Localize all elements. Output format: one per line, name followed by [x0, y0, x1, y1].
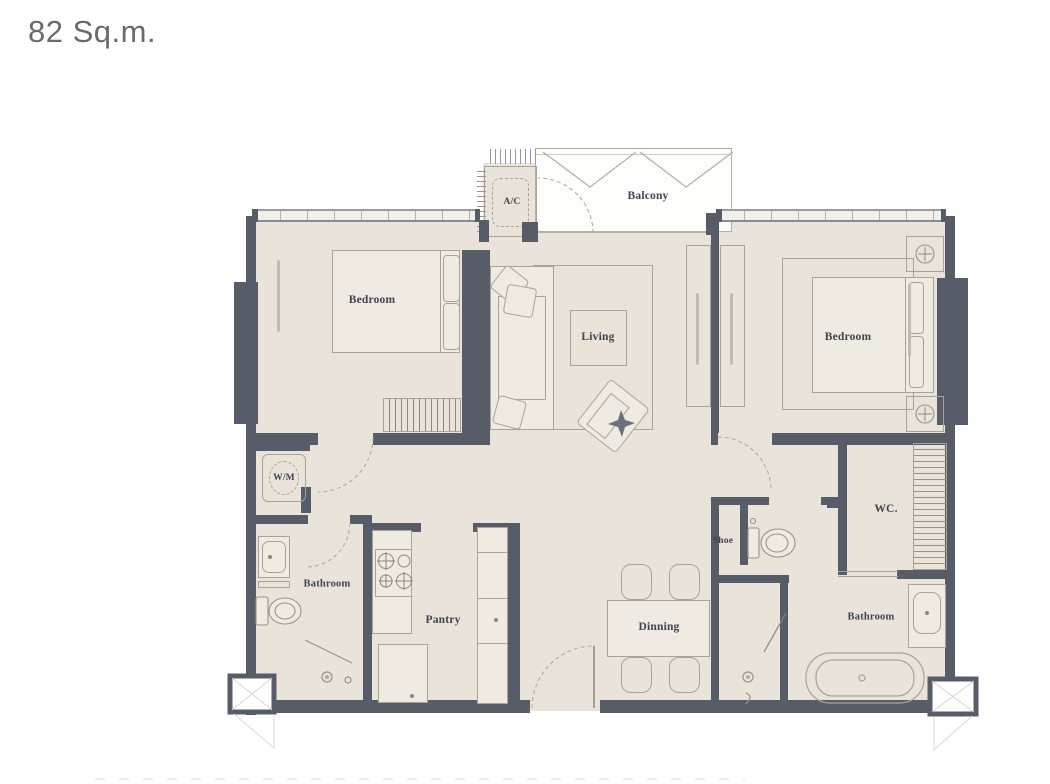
bathtub-icon: [806, 653, 924, 703]
structural-column: [230, 676, 976, 714]
room-label-shoe: Shoe: [713, 536, 733, 546]
fixture-overlay: [0, 0, 1050, 784]
bathroom-door-leaf: [764, 613, 786, 652]
room-label-balcony: Balcony: [627, 190, 668, 202]
room-label-ac: A/C: [504, 197, 521, 207]
bedside-lamp-icon: [916, 245, 934, 423]
balcony-fold-doors-icon: [543, 152, 733, 187]
room-label-living: Living: [581, 331, 614, 343]
room-label-wm: W/M: [273, 473, 295, 483]
column-x-marks: [232, 678, 974, 712]
faucet-dot: [268, 555, 929, 698]
room-label-bathroom-right: Bathroom: [848, 612, 895, 623]
room-label-bathroom-left: Bathroom: [304, 579, 351, 590]
shower-drain-icon: [743, 672, 753, 704]
room-label-pantry: Pantry: [425, 614, 460, 626]
room-label-bedroom-left: Bedroom: [349, 294, 396, 306]
door-swing-arcs: [306, 178, 771, 708]
stove-burners-icon: [377, 552, 413, 590]
room-label-wc: WC.: [874, 503, 897, 515]
floor-plan-page: 82 Sq.m.: [0, 0, 1050, 784]
room-label-dining: Dinning: [638, 621, 679, 633]
exterior-faint-lines: [95, 714, 972, 779]
toilet-icon: [256, 597, 301, 625]
plant-icon: [608, 410, 635, 437]
toilet-icon: [748, 519, 795, 559]
shower-icon: [305, 640, 352, 683]
room-label-bedroom-right: Bedroom: [825, 331, 872, 343]
